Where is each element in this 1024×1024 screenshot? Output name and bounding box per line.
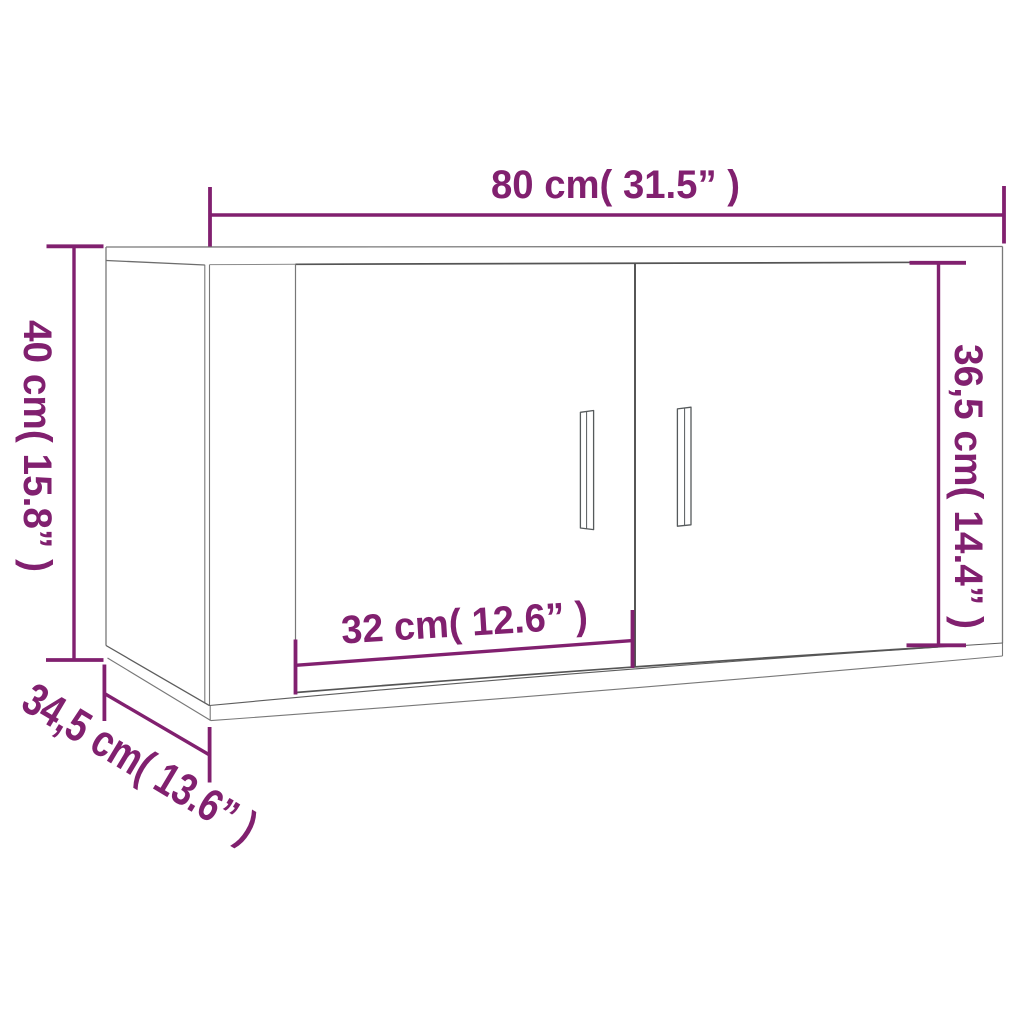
svg-text:80 cm( 31.5” ): 80 cm( 31.5” ) — [491, 163, 740, 207]
svg-text:40 cm( 15.8” ): 40 cm( 15.8” ) — [15, 320, 59, 572]
svg-text:36,5 cm( 14.4” ): 36,5 cm( 14.4” ) — [946, 344, 990, 629]
